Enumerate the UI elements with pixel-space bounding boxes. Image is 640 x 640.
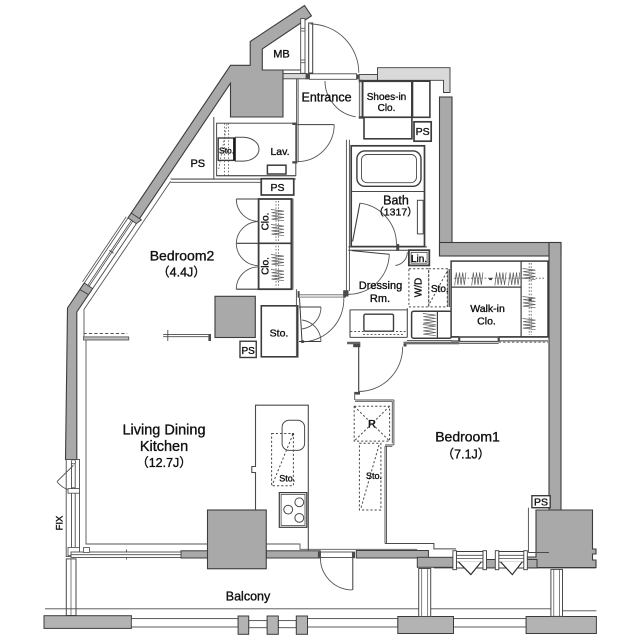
svg-text:PS: PS bbox=[416, 126, 430, 138]
svg-text:PS: PS bbox=[534, 496, 548, 508]
svg-text:Shoes-in: Shoes-in bbox=[367, 92, 406, 103]
svg-text:Rm.: Rm. bbox=[370, 293, 390, 305]
svg-text:（1317）: （1317） bbox=[373, 207, 417, 219]
svg-text:Entrance: Entrance bbox=[301, 91, 351, 105]
svg-text:W/D: W/D bbox=[414, 278, 425, 297]
svg-text:Clo.: Clo. bbox=[260, 257, 271, 275]
svg-text:（4.4J）: （4.4J） bbox=[157, 266, 206, 280]
svg-text:Sto.: Sto. bbox=[431, 284, 449, 295]
svg-text:Lin.: Lin. bbox=[411, 254, 427, 265]
svg-text:Dressing: Dressing bbox=[359, 280, 402, 292]
svg-text:PS: PS bbox=[270, 182, 284, 194]
svg-text:Sto.: Sto. bbox=[366, 471, 382, 481]
svg-text:Lav.: Lav. bbox=[270, 146, 289, 158]
svg-text:Balcony: Balcony bbox=[226, 589, 271, 603]
svg-text:MB: MB bbox=[273, 49, 290, 61]
svg-text:Kitchen: Kitchen bbox=[140, 439, 188, 455]
svg-text:Bath: Bath bbox=[383, 194, 409, 208]
svg-text:Clo.: Clo. bbox=[477, 316, 496, 328]
svg-text:PS: PS bbox=[190, 158, 205, 170]
svg-text:Walk-in: Walk-in bbox=[470, 303, 505, 315]
svg-text:Living Dining: Living Dining bbox=[122, 422, 205, 438]
svg-text:Clo.: Clo. bbox=[260, 213, 271, 231]
svg-text:FIX: FIX bbox=[55, 515, 66, 530]
svg-text:Sto.: Sto. bbox=[279, 474, 295, 484]
svg-text:Bedroom1: Bedroom1 bbox=[435, 428, 500, 444]
svg-text:Sto.: Sto. bbox=[270, 327, 289, 339]
svg-text:（7.1J）: （7.1J） bbox=[442, 447, 491, 461]
svg-text:R: R bbox=[368, 419, 376, 431]
svg-text:（12.7J）: （12.7J） bbox=[136, 456, 192, 470]
svg-text:Bedroom2: Bedroom2 bbox=[150, 248, 215, 264]
svg-text:Sto.: Sto. bbox=[219, 146, 234, 156]
svg-text:PS: PS bbox=[242, 346, 256, 357]
svg-text:Clo.: Clo. bbox=[378, 103, 396, 114]
